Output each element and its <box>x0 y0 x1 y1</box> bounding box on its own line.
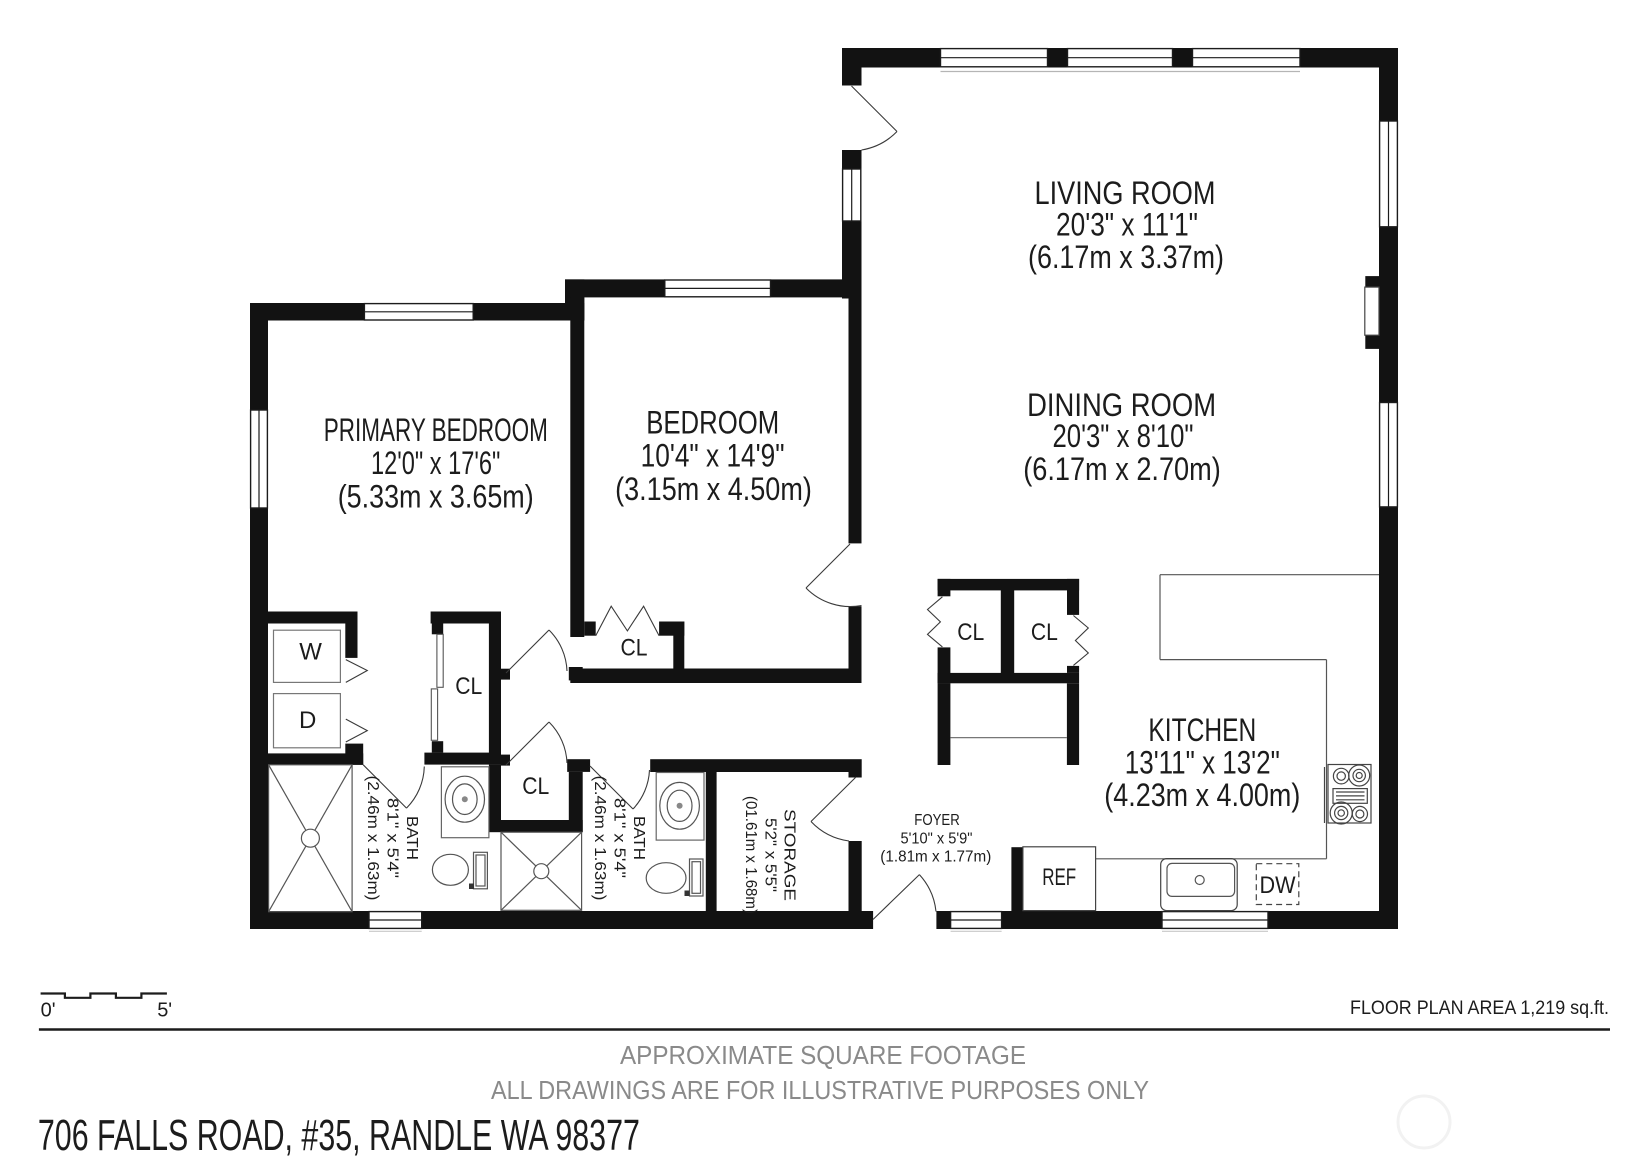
svg-text:APPROXIMATE SQUARE FOOTAGE: APPROXIMATE SQUARE FOOTAGE <box>620 1040 1026 1070</box>
svg-text:(5.33m x 3.65m): (5.33m x 3.65m) <box>338 479 534 515</box>
svg-text:CL: CL <box>522 773 549 800</box>
svg-text:REF: REF <box>1042 864 1076 891</box>
svg-text:(6.17m x 2.70m): (6.17m x 2.70m) <box>1023 451 1221 487</box>
svg-text:5': 5' <box>157 999 172 1021</box>
svg-text:(1.81m x 1.77m): (1.81m x 1.77m) <box>880 849 991 866</box>
svg-text:10'4" x 14'9": 10'4" x 14'9" <box>641 438 785 474</box>
svg-text:706 FALLS ROAD, #35, RANDLE WA: 706 FALLS ROAD, #35, RANDLE WA 98377 <box>38 1111 640 1160</box>
svg-text:CL: CL <box>621 635 648 662</box>
svg-text:20'3" x 8'10": 20'3" x 8'10" <box>1053 418 1194 454</box>
svg-text:ALL DRAWINGS ARE FOR ILLUSTRAT: ALL DRAWINGS ARE FOR ILLUSTRATIVE PURPOS… <box>491 1075 1149 1105</box>
svg-text:13'11" x 13'2": 13'11" x 13'2" <box>1125 745 1280 781</box>
svg-text:KITCHEN: KITCHEN <box>1148 712 1256 748</box>
svg-text:DW: DW <box>1260 872 1296 899</box>
svg-text:(6.17m x 3.37m): (6.17m x 3.37m) <box>1028 239 1224 275</box>
svg-text:W: W <box>299 639 322 666</box>
svg-text:(4.23m x 4.00m): (4.23m x 4.00m) <box>1104 777 1300 813</box>
svg-text:0': 0' <box>41 999 56 1021</box>
svg-text:PRIMARY BEDROOM: PRIMARY BEDROOM <box>324 412 548 448</box>
svg-text:CL: CL <box>455 673 482 700</box>
svg-text:CL: CL <box>957 619 984 646</box>
svg-text:20'3" x 11'1": 20'3" x 11'1" <box>1056 207 1198 243</box>
svg-text:FOYER: FOYER <box>914 812 960 829</box>
svg-text:5'10" x 5'9": 5'10" x 5'9" <box>901 830 973 847</box>
svg-text:D: D <box>299 707 316 734</box>
svg-text:(3.15m x 4.50m): (3.15m x 4.50m) <box>615 471 812 507</box>
svg-text:CL: CL <box>1031 619 1058 646</box>
svg-text:BEDROOM: BEDROOM <box>646 405 779 441</box>
svg-text:FLOOR PLAN AREA 1,219 sq.ft.: FLOOR PLAN AREA 1,219 sq.ft. <box>1350 998 1609 1019</box>
svg-text:12'0" x 17'6": 12'0" x 17'6" <box>371 445 500 481</box>
